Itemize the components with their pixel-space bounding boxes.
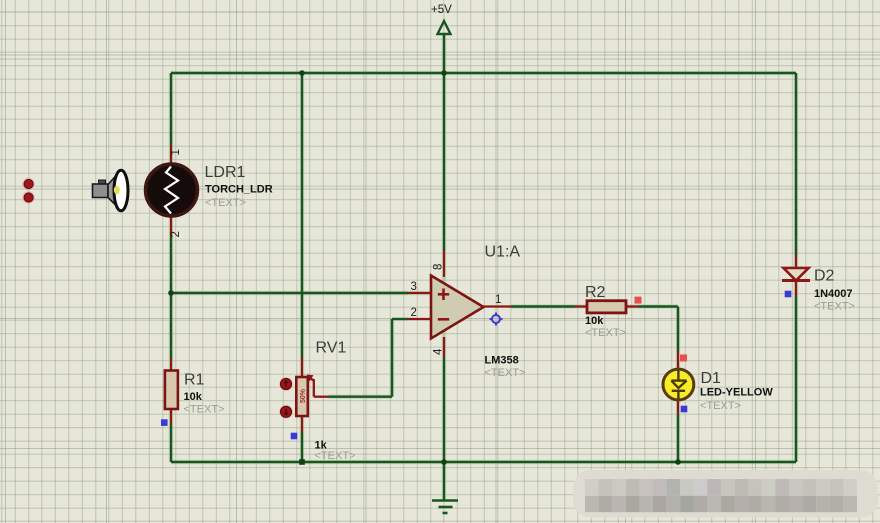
svg-text:4: 4 [433, 348, 445, 355]
svg-text:LDR1: LDR1 [205, 164, 246, 181]
svg-text:D2: D2 [814, 268, 835, 285]
svg-text:D1: D1 [701, 370, 722, 387]
svg-text:<TEXT>: <TEXT> [814, 301, 855, 313]
svg-text:<TEXT>: <TEXT> [700, 400, 741, 412]
svg-text:1: 1 [495, 294, 501, 306]
svg-text:10k: 10k [184, 391, 203, 403]
svg-text:2: 2 [411, 307, 417, 319]
svg-text:R1: R1 [184, 372, 205, 389]
svg-text:<TEXT>: <TEXT> [315, 450, 356, 462]
svg-text:TORCH_LDR: TORCH_LDR [205, 184, 273, 196]
svg-text:LED-YELLOW: LED-YELLOW [700, 387, 773, 399]
svg-text:+5V: +5V [431, 4, 452, 16]
svg-text:<TEXT>: <TEXT> [205, 197, 246, 209]
svg-text:LM358: LM358 [485, 355, 519, 367]
svg-text:1: 1 [170, 149, 182, 155]
svg-text:50%: 50% [300, 388, 307, 403]
svg-text:<TEXT>: <TEXT> [485, 367, 526, 379]
svg-text:<TEXT>: <TEXT> [184, 404, 225, 416]
svg-text:8: 8 [433, 264, 445, 270]
svg-text:<TEXT>: <TEXT> [585, 327, 626, 339]
svg-text:R2: R2 [585, 284, 606, 301]
svg-text:RV1: RV1 [316, 340, 347, 357]
svg-text:U1:A: U1:A [485, 244, 521, 261]
svg-text:2: 2 [170, 231, 182, 237]
svg-text:3: 3 [411, 281, 417, 293]
svg-text:10k: 10k [585, 315, 604, 327]
svg-text:1N4007: 1N4007 [814, 288, 853, 300]
